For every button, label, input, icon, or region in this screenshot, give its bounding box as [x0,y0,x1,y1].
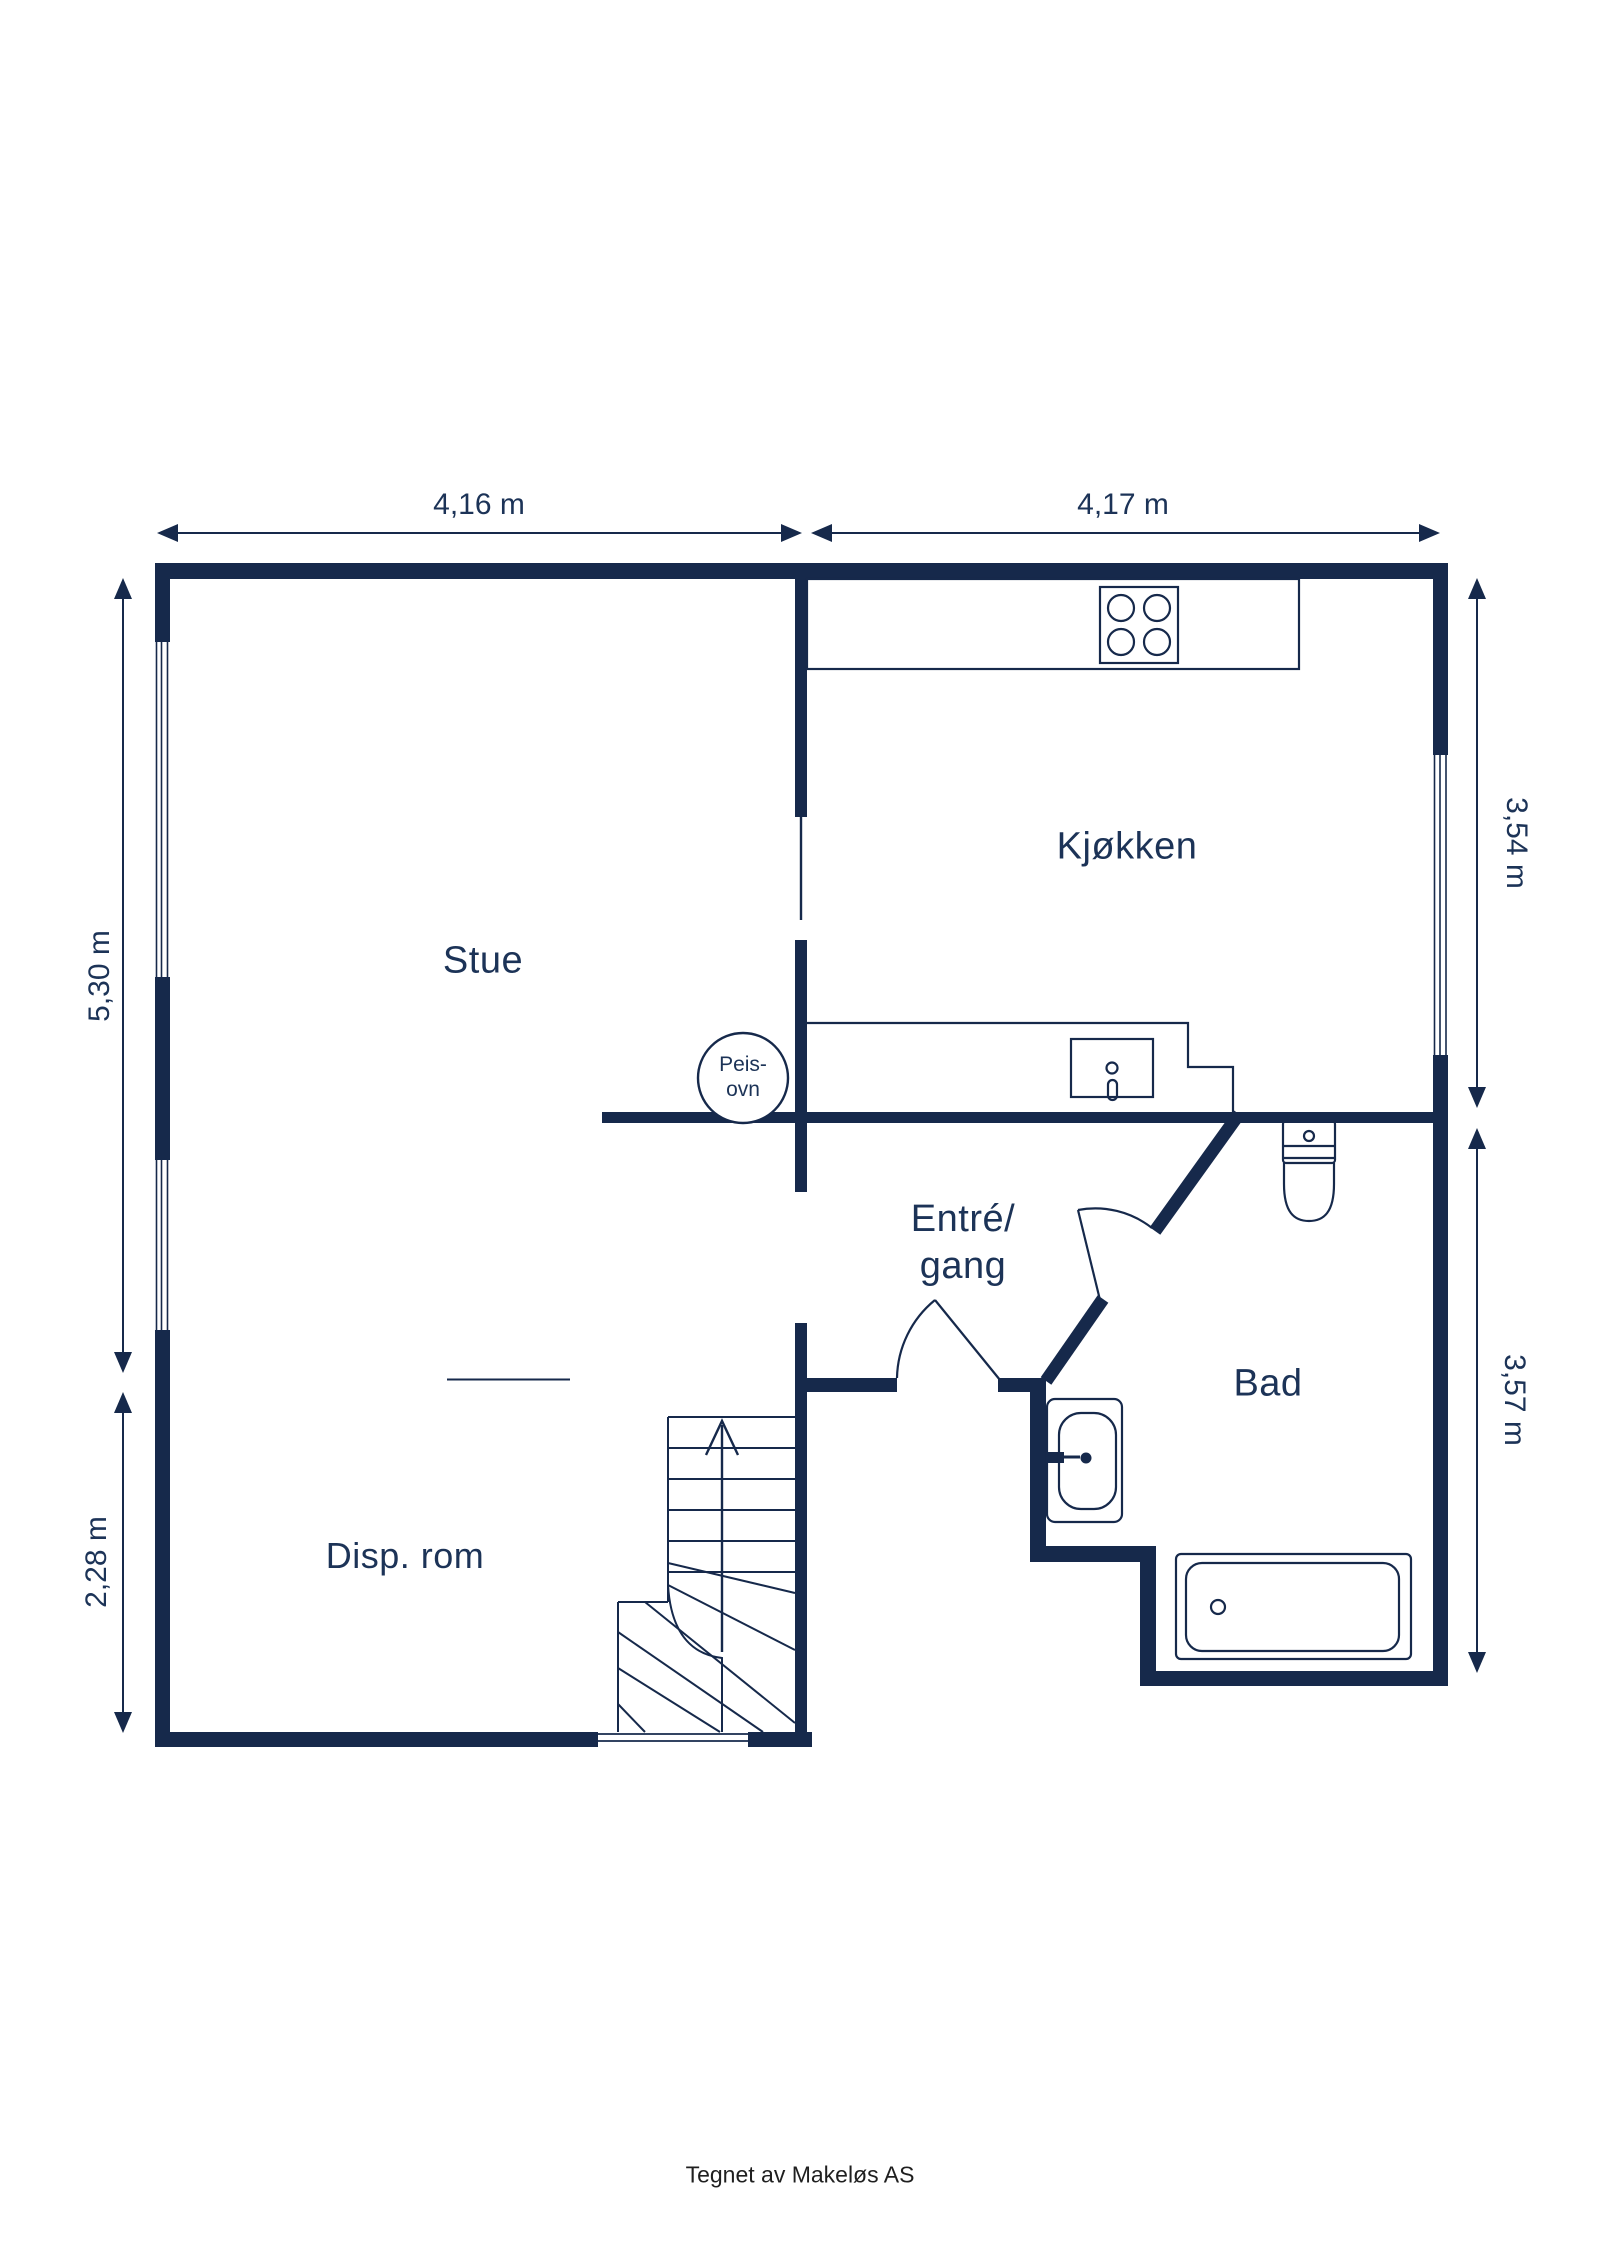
wall-divider-upper [795,563,807,817]
room-label-entre-line1: Entré/ [911,1196,1015,1243]
wall-entre-bottom-right [998,1378,1046,1392]
wall-bath-bottom [1140,1671,1448,1686]
toilet-icon [1283,1121,1335,1221]
fireplace-label: Peis- ovn [719,1052,767,1102]
room-label-entre-gang: Entré/ gang [911,1196,1015,1290]
wall-bath-left-lower [1140,1546,1156,1686]
bathroom-fixtures [1047,1121,1411,1659]
dimension-left-lower [114,1392,132,1733]
dimension-right-upper [1468,578,1486,1108]
wall-entre-bottom-left [807,1378,897,1392]
fireplace-label-line2: ovn [719,1077,767,1102]
kitchen-counter-top [807,579,1299,669]
dimension-label-right-upper: 3,54 m [1499,797,1533,889]
dimension-label-top-right: 4,17 m [1077,488,1169,522]
drawing-credit: Tegnet av Makeløs AS [686,2162,915,2189]
dimension-label-left-lower: 2,28 m [80,1516,114,1608]
wall-bath-left-upper [1030,1378,1046,1562]
stove-icon [1100,587,1178,663]
room-label-stue: Stue [443,940,523,983]
door-swing-arc [1078,1208,1152,1228]
door-swing-arc [897,1300,935,1378]
dimension-label-top-left: 4,16 m [433,488,525,522]
floor-plan-page: Stue Kjøkken Entré/ gang Bad Disp. rom P… [0,0,1600,2263]
dimension-label-left-upper: 5,30 m [83,930,117,1022]
kitchen-counter-lower [807,1023,1233,1112]
room-label-entre-line2: gang [911,1243,1015,1290]
bathroom-door [1078,1208,1152,1300]
dimension-label-right-lower: 3,57 m [1497,1354,1531,1446]
kitchen-sink-icon [1071,1039,1153,1100]
room-label-bad: Bad [1233,1363,1302,1406]
dimension-top-left [157,524,802,542]
wall-divider-middle [795,940,807,1192]
wall-diagonals [1046,1114,1239,1381]
floor-plan-drawing [0,0,1600,2263]
door-leaf [1078,1210,1100,1300]
bathroom-sink-icon [1047,1399,1122,1522]
dimension-right-lower [1468,1128,1486,1673]
wall-diagonal-lower [1046,1299,1103,1381]
front-door [897,1300,1000,1380]
staircase [618,1417,795,1732]
kitchen-fixtures [807,579,1299,1112]
wall-divider-lower [795,1323,807,1747]
wall-diagonal-upper [1155,1114,1239,1231]
dimension-top-right [811,524,1440,542]
room-label-kjokken: Kjøkken [1057,826,1198,869]
wall-right [1433,563,1448,1686]
wall-bath-jog [1030,1546,1156,1562]
door-leaf [935,1300,1000,1380]
bathtub-icon [1176,1554,1411,1659]
room-label-disp-rom: Disp. rom [326,1535,485,1577]
fireplace-label-line1: Peis- [719,1052,767,1077]
